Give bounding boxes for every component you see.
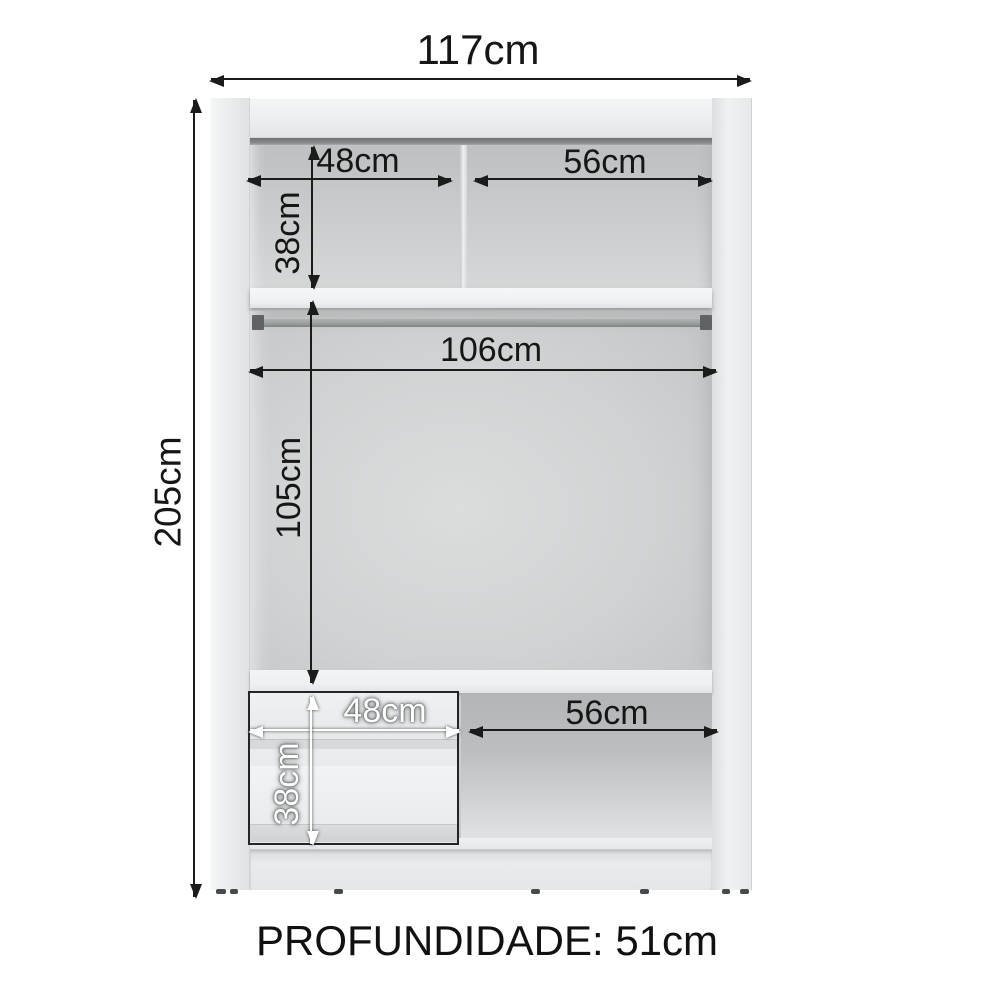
dim-overall-width-label: 117cm <box>417 29 540 71</box>
hanging-rod <box>256 319 708 327</box>
dim-overall-height-arrow <box>193 100 195 897</box>
wardrobe-left-panel <box>210 98 250 890</box>
foot <box>230 889 238 894</box>
foot <box>740 889 749 894</box>
depth-note: PROFUNDIDADE: 51cm <box>256 920 718 962</box>
wardrobe-top-panel <box>210 98 752 138</box>
foot <box>216 889 226 894</box>
drawer-base-shadow <box>250 825 457 842</box>
dim-lower-height-label: 38cm <box>270 742 304 825</box>
base-plinth <box>250 850 712 890</box>
dim-hanging-height-arrow <box>310 302 312 683</box>
foot <box>640 889 649 894</box>
dim-upper-left-width-label: 48cm <box>316 144 399 178</box>
dim-overall-width-arrow <box>211 78 750 80</box>
wardrobe-dimension-diagram: 117cm 205cm 48cm 56cm 38cm 106cm 105cm 4… <box>0 0 1000 1000</box>
rod-bracket-left <box>252 315 264 330</box>
foot <box>531 889 540 894</box>
rod-bracket-right <box>700 315 712 330</box>
dim-overall-height-label: 205cm <box>150 436 187 547</box>
wardrobe-right-panel <box>712 98 752 890</box>
dim-upper-right-width-label: 56cm <box>563 145 646 179</box>
foot <box>334 889 343 894</box>
dim-lower-height-arrow <box>310 697 312 844</box>
dim-lower-right-width-label: 56cm <box>565 696 648 730</box>
dim-upper-height-label: 38cm <box>271 191 305 274</box>
foot <box>722 889 730 894</box>
lower-shelf-board <box>250 670 712 693</box>
dim-hanging-height-label: 105cm <box>272 437 306 539</box>
dim-rod-width-arrow <box>250 369 716 371</box>
dim-upper-height-arrow <box>311 147 313 288</box>
dim-rod-width-label: 106cm <box>440 333 542 367</box>
upper-shelf-divider <box>460 145 467 288</box>
dim-lower-left-width-label: 48cm <box>343 694 426 728</box>
upper-shelf-board <box>250 288 712 308</box>
